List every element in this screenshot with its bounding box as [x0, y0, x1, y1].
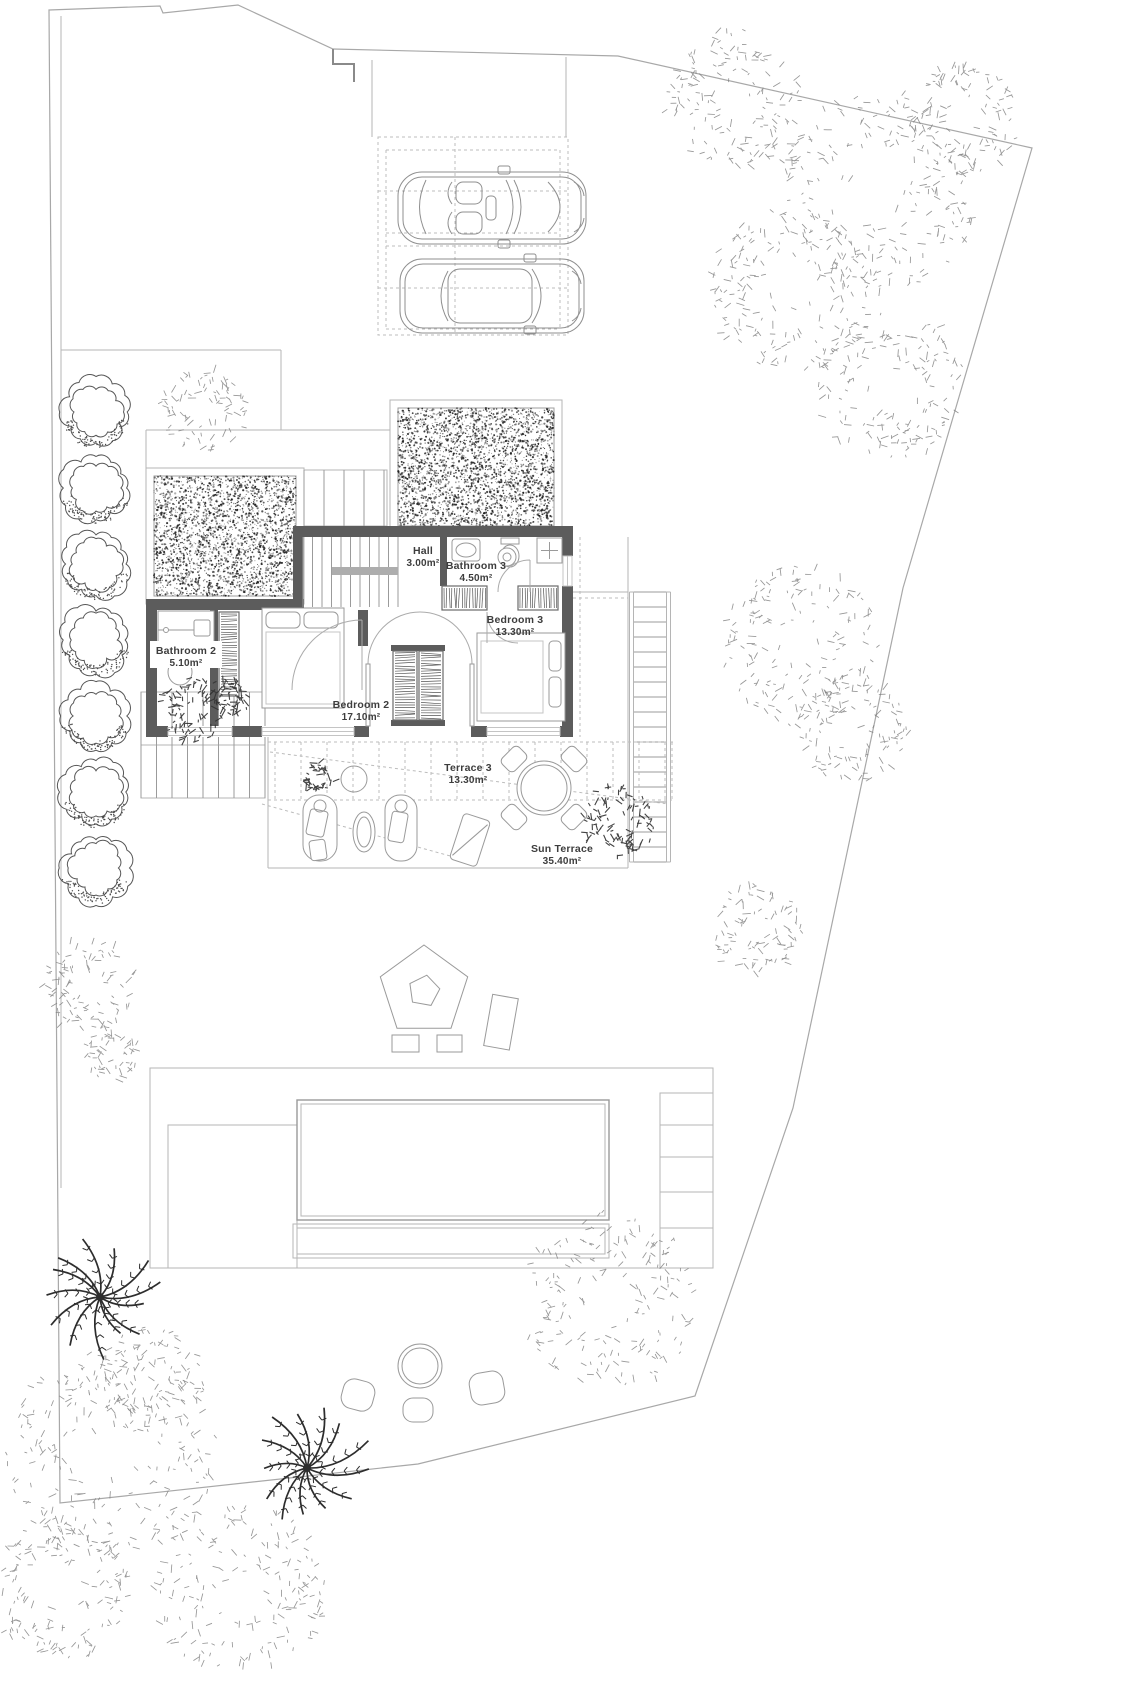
- tree-icon: [151, 1505, 325, 1669]
- tree-icon: [818, 313, 962, 458]
- tree-icon: [907, 62, 1017, 175]
- hedge-bush-icon: [59, 680, 131, 751]
- tree-icon: [39, 937, 136, 1031]
- plant-pot-icon: [341, 766, 367, 792]
- tree-icon: [708, 209, 867, 370]
- palm-tree-icon: [47, 1239, 161, 1360]
- swimming-pool: [297, 1100, 609, 1220]
- tree-icon: [780, 91, 976, 296]
- parking-area: [378, 137, 586, 335]
- tree-icon: [723, 564, 880, 726]
- tree-icon: [716, 881, 803, 977]
- label-bedroom3-area: 13.30m²: [496, 627, 535, 638]
- car-hatchback: [400, 254, 584, 334]
- hedge-bush-icon: [57, 757, 128, 828]
- overflow-channel: [293, 1224, 609, 1258]
- dining-set: [499, 744, 589, 832]
- label-bathroom3-area: 4.50m²: [460, 573, 493, 584]
- floor-plan-page: Hall 3.00m² Bathroom 3 4.50m² Bedroom 3 …: [0, 0, 1130, 1704]
- hedge-bush-icon: [59, 455, 130, 524]
- stair-handrail: [332, 567, 398, 575]
- label-bedroom2-area: 17.10m²: [342, 712, 381, 723]
- label-bathroom2-name: Bathroom 2: [156, 645, 216, 657]
- tilted-lounger: [449, 813, 490, 867]
- tree-icon: [84, 1025, 140, 1082]
- label-terrace3-area: 13.30m²: [449, 775, 488, 786]
- sink-icon: [456, 543, 476, 557]
- site-boundary: [49, 5, 1032, 1503]
- hedge-bush-icon: [58, 837, 133, 907]
- hedge-bush-icon: [62, 530, 131, 600]
- stair-exterior: [630, 592, 671, 862]
- tree-icon: [662, 28, 802, 170]
- label-bathroom2-area: 5.10m²: [170, 658, 203, 669]
- label-terrace3-name: Terrace 3: [444, 762, 492, 774]
- floor-plan-canvas: Hall 3.00m² Bathroom 3 4.50m² Bedroom 3 …: [0, 0, 1130, 1704]
- palm-tree-icon: [262, 1408, 369, 1520]
- label-hall-area: 3.00m²: [407, 558, 440, 569]
- label-sunterrace-area: 35.40m²: [543, 856, 582, 867]
- pool-steps: [660, 1093, 713, 1268]
- pool-area: [150, 1068, 713, 1268]
- hidden-lines: [573, 537, 628, 737]
- label-hall-name: Hall: [413, 545, 433, 557]
- hedge-bush-icon: [60, 605, 129, 678]
- tree-icon: [6, 1352, 217, 1562]
- stair-interior: [303, 537, 398, 607]
- parasol-set: [380, 945, 518, 1052]
- tree-icon: [98, 1327, 204, 1437]
- fire-pit: [339, 1344, 507, 1422]
- pool-deck: [150, 1068, 713, 1268]
- bedroom2-bed: [262, 608, 344, 708]
- tree-icon: [0, 1518, 131, 1658]
- label-bathroom3-name: Bathroom 3: [446, 560, 506, 572]
- boundary-step-wall: [333, 49, 354, 82]
- tree-icon: [527, 1210, 696, 1385]
- tree-icon: [158, 365, 248, 452]
- bush-icon: [303, 759, 339, 792]
- vegetation: [0, 28, 1017, 1670]
- stair-roof-opening: [304, 470, 387, 526]
- car-convertible: [398, 166, 586, 248]
- label-sunterrace-name: Sun Terrace: [531, 843, 593, 855]
- label-bedroom3-name: Bedroom 3: [487, 614, 544, 626]
- hedge-bush-icon: [59, 375, 130, 448]
- label-bedroom2-name: Bedroom 2: [333, 699, 390, 711]
